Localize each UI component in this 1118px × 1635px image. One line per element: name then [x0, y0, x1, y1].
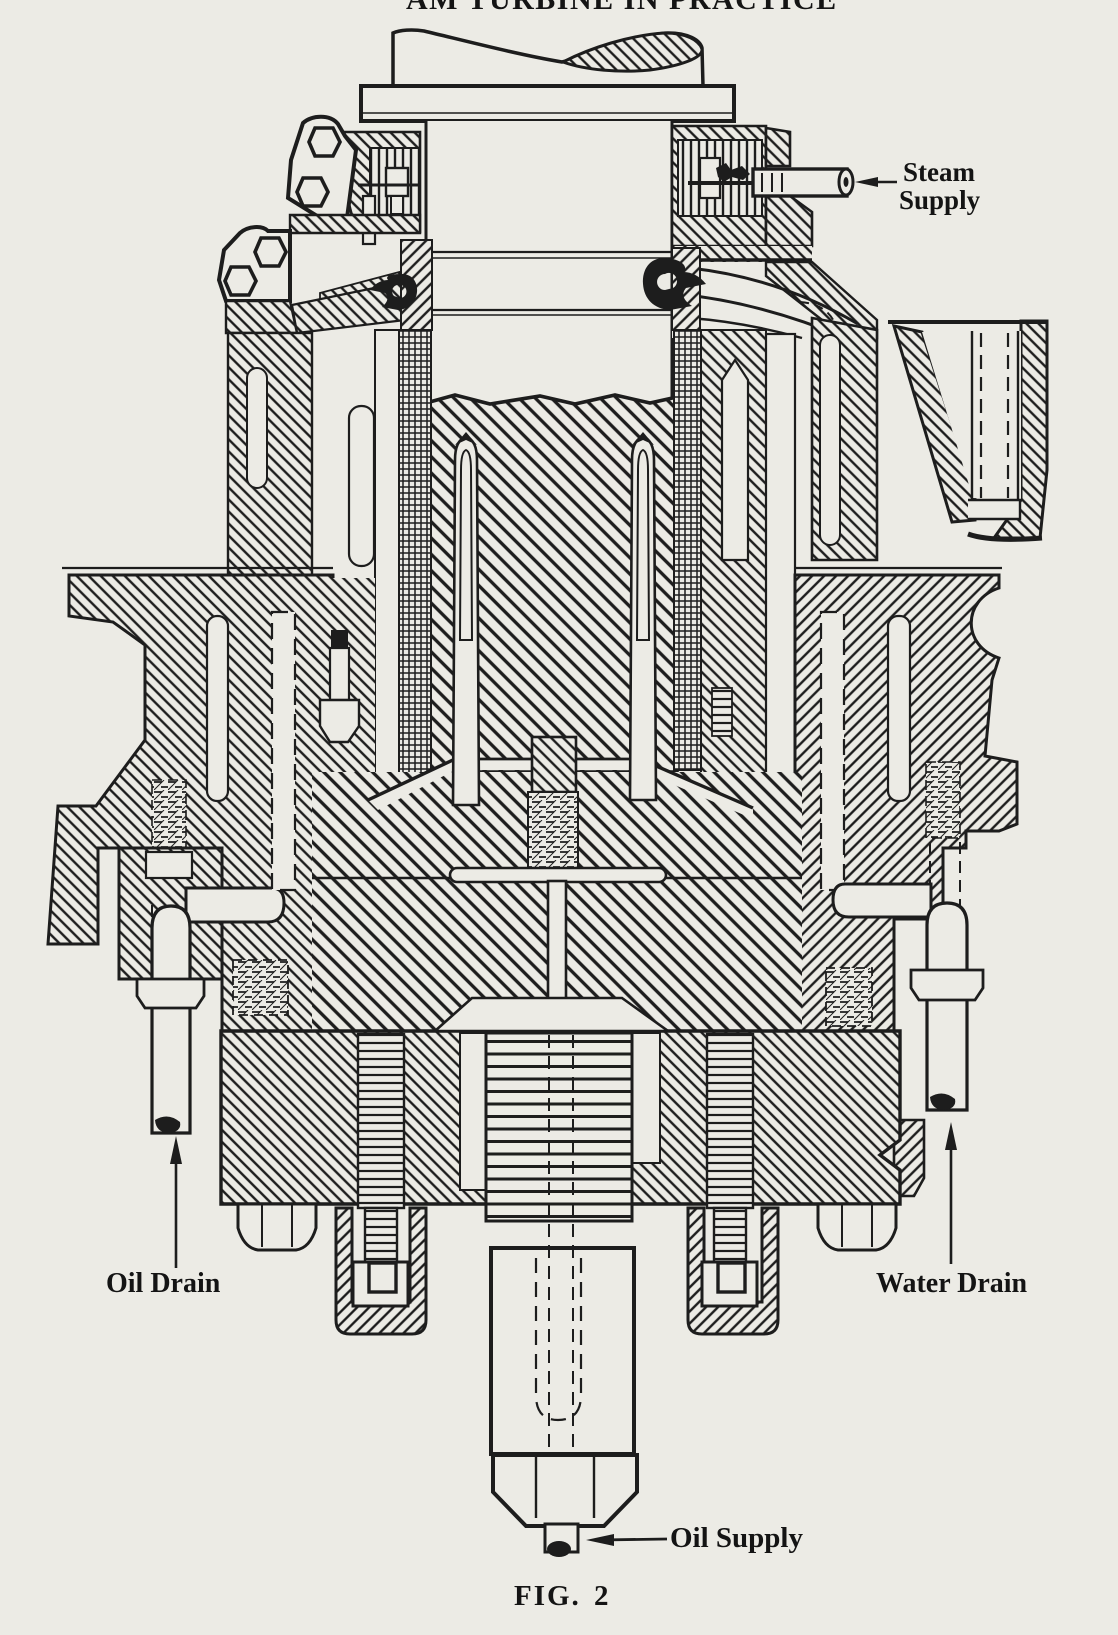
svg-text:Oil Drain: Oil Drain — [106, 1268, 221, 1299]
svg-text:FIG.: FIG. — [514, 1580, 581, 1612]
svg-text:2: 2 — [594, 1580, 609, 1612]
svg-text:Oil Supply: Oil Supply — [670, 1522, 803, 1554]
svg-text:Water Drain: Water Drain — [876, 1268, 1028, 1299]
svg-text:Steam: Steam — [903, 157, 975, 187]
svg-text:Supply: Supply — [899, 185, 981, 215]
